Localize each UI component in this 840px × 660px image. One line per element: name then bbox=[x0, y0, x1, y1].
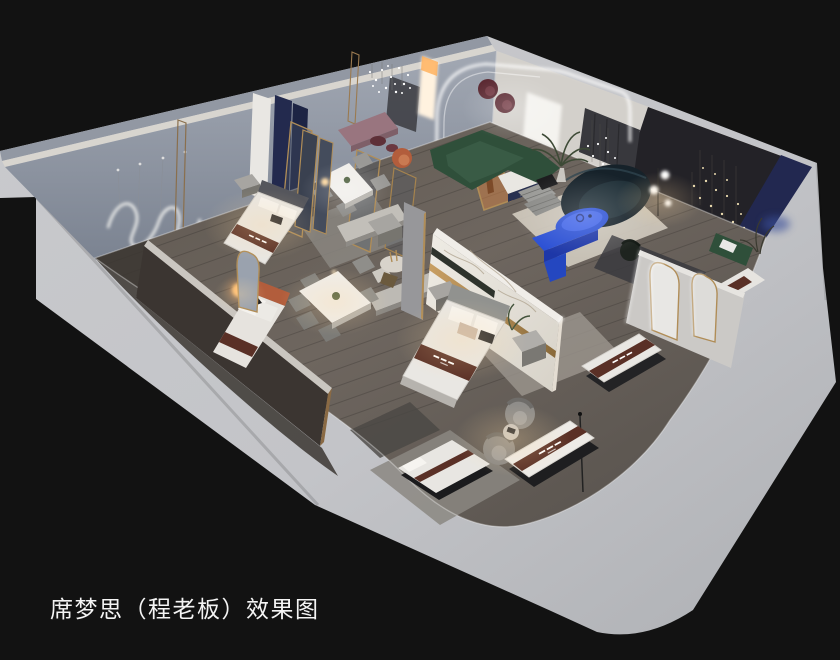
rendering-canvas: 席梦思（程老板）效果图 bbox=[0, 0, 840, 660]
burgundy-side-table bbox=[370, 136, 386, 146]
isometric-scene bbox=[0, 0, 840, 660]
caption-title: 席梦思（程老板）效果图 bbox=[50, 590, 320, 624]
navy-panel-glow bbox=[762, 216, 790, 232]
arch-mirror bbox=[650, 263, 679, 340]
arch-mirror bbox=[692, 274, 717, 342]
